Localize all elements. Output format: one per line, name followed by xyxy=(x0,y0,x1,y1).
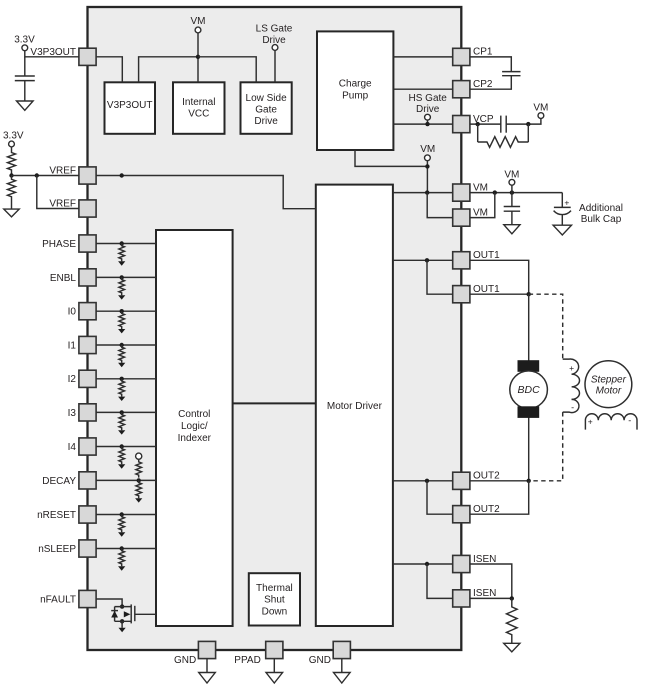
svg-text:nSLEEP: nSLEEP xyxy=(38,544,76,555)
svg-text:nRESET: nRESET xyxy=(37,510,76,521)
svg-text:I2: I2 xyxy=(68,374,77,385)
svg-text:Gate: Gate xyxy=(255,105,277,116)
svg-text:OUT2: OUT2 xyxy=(473,471,500,482)
svg-text:Indexer: Indexer xyxy=(178,433,212,444)
svg-text:Shut: Shut xyxy=(264,595,285,606)
svg-text:VM: VM xyxy=(191,16,206,27)
svg-text:VM: VM xyxy=(420,144,435,155)
svg-text:GND: GND xyxy=(309,655,331,666)
svg-text:I1: I1 xyxy=(68,340,77,351)
svg-text:ISEN: ISEN xyxy=(473,588,496,599)
svg-text:OUT1: OUT1 xyxy=(473,284,500,295)
svg-text:I0: I0 xyxy=(68,307,77,318)
svg-text:3.3V: 3.3V xyxy=(14,35,35,46)
svg-text:Thermal: Thermal xyxy=(256,583,293,594)
svg-text:BDC: BDC xyxy=(518,384,541,396)
svg-text:ENBL: ENBL xyxy=(50,273,77,284)
svg-text:VM: VM xyxy=(473,207,488,218)
svg-text:Additional: Additional xyxy=(579,203,623,214)
svg-text:Stepper: Stepper xyxy=(591,374,627,385)
svg-text:Down: Down xyxy=(262,606,288,617)
svg-text:-: - xyxy=(571,403,574,413)
svg-text:Drive: Drive xyxy=(416,104,440,115)
svg-text:+: + xyxy=(569,363,574,373)
svg-text:Motor Driver: Motor Driver xyxy=(327,401,383,412)
svg-text:Control: Control xyxy=(178,409,210,420)
svg-text:+: + xyxy=(564,197,569,207)
svg-text:-: - xyxy=(628,416,631,426)
svg-text:LS Gate: LS Gate xyxy=(256,24,293,35)
svg-text:HS Gate: HS Gate xyxy=(409,93,448,104)
svg-text:PPAD: PPAD xyxy=(234,655,261,666)
svg-text:CP1: CP1 xyxy=(473,47,493,58)
svg-text:Logic/: Logic/ xyxy=(181,421,208,432)
svg-text:nFAULT: nFAULT xyxy=(40,594,76,605)
svg-text:3.3V: 3.3V xyxy=(3,131,24,142)
svg-text:VCC: VCC xyxy=(188,109,209,120)
svg-text:VM: VM xyxy=(533,103,548,114)
svg-text:Drive: Drive xyxy=(254,116,278,127)
svg-text:PHASE: PHASE xyxy=(42,239,76,250)
svg-text:Bulk Cap: Bulk Cap xyxy=(581,214,622,225)
svg-text:GND: GND xyxy=(174,655,196,666)
svg-text:CP2: CP2 xyxy=(473,79,493,90)
svg-text:Internal: Internal xyxy=(182,97,215,108)
svg-text:I4: I4 xyxy=(68,442,77,453)
svg-text:+: + xyxy=(588,417,593,427)
svg-text:Motor: Motor xyxy=(596,386,622,397)
svg-text:OUT2: OUT2 xyxy=(473,504,500,515)
svg-text:I3: I3 xyxy=(68,408,77,419)
svg-text:DECAY: DECAY xyxy=(42,476,76,487)
svg-text:Pump: Pump xyxy=(342,91,369,102)
svg-text:VM: VM xyxy=(473,182,488,193)
svg-text:V3P3OUT: V3P3OUT xyxy=(107,100,153,111)
svg-text:ISEN: ISEN xyxy=(473,554,496,565)
svg-text:Low Side: Low Side xyxy=(246,93,288,104)
svg-text:OUT1: OUT1 xyxy=(473,250,500,261)
svg-text:Charge: Charge xyxy=(339,79,372,90)
